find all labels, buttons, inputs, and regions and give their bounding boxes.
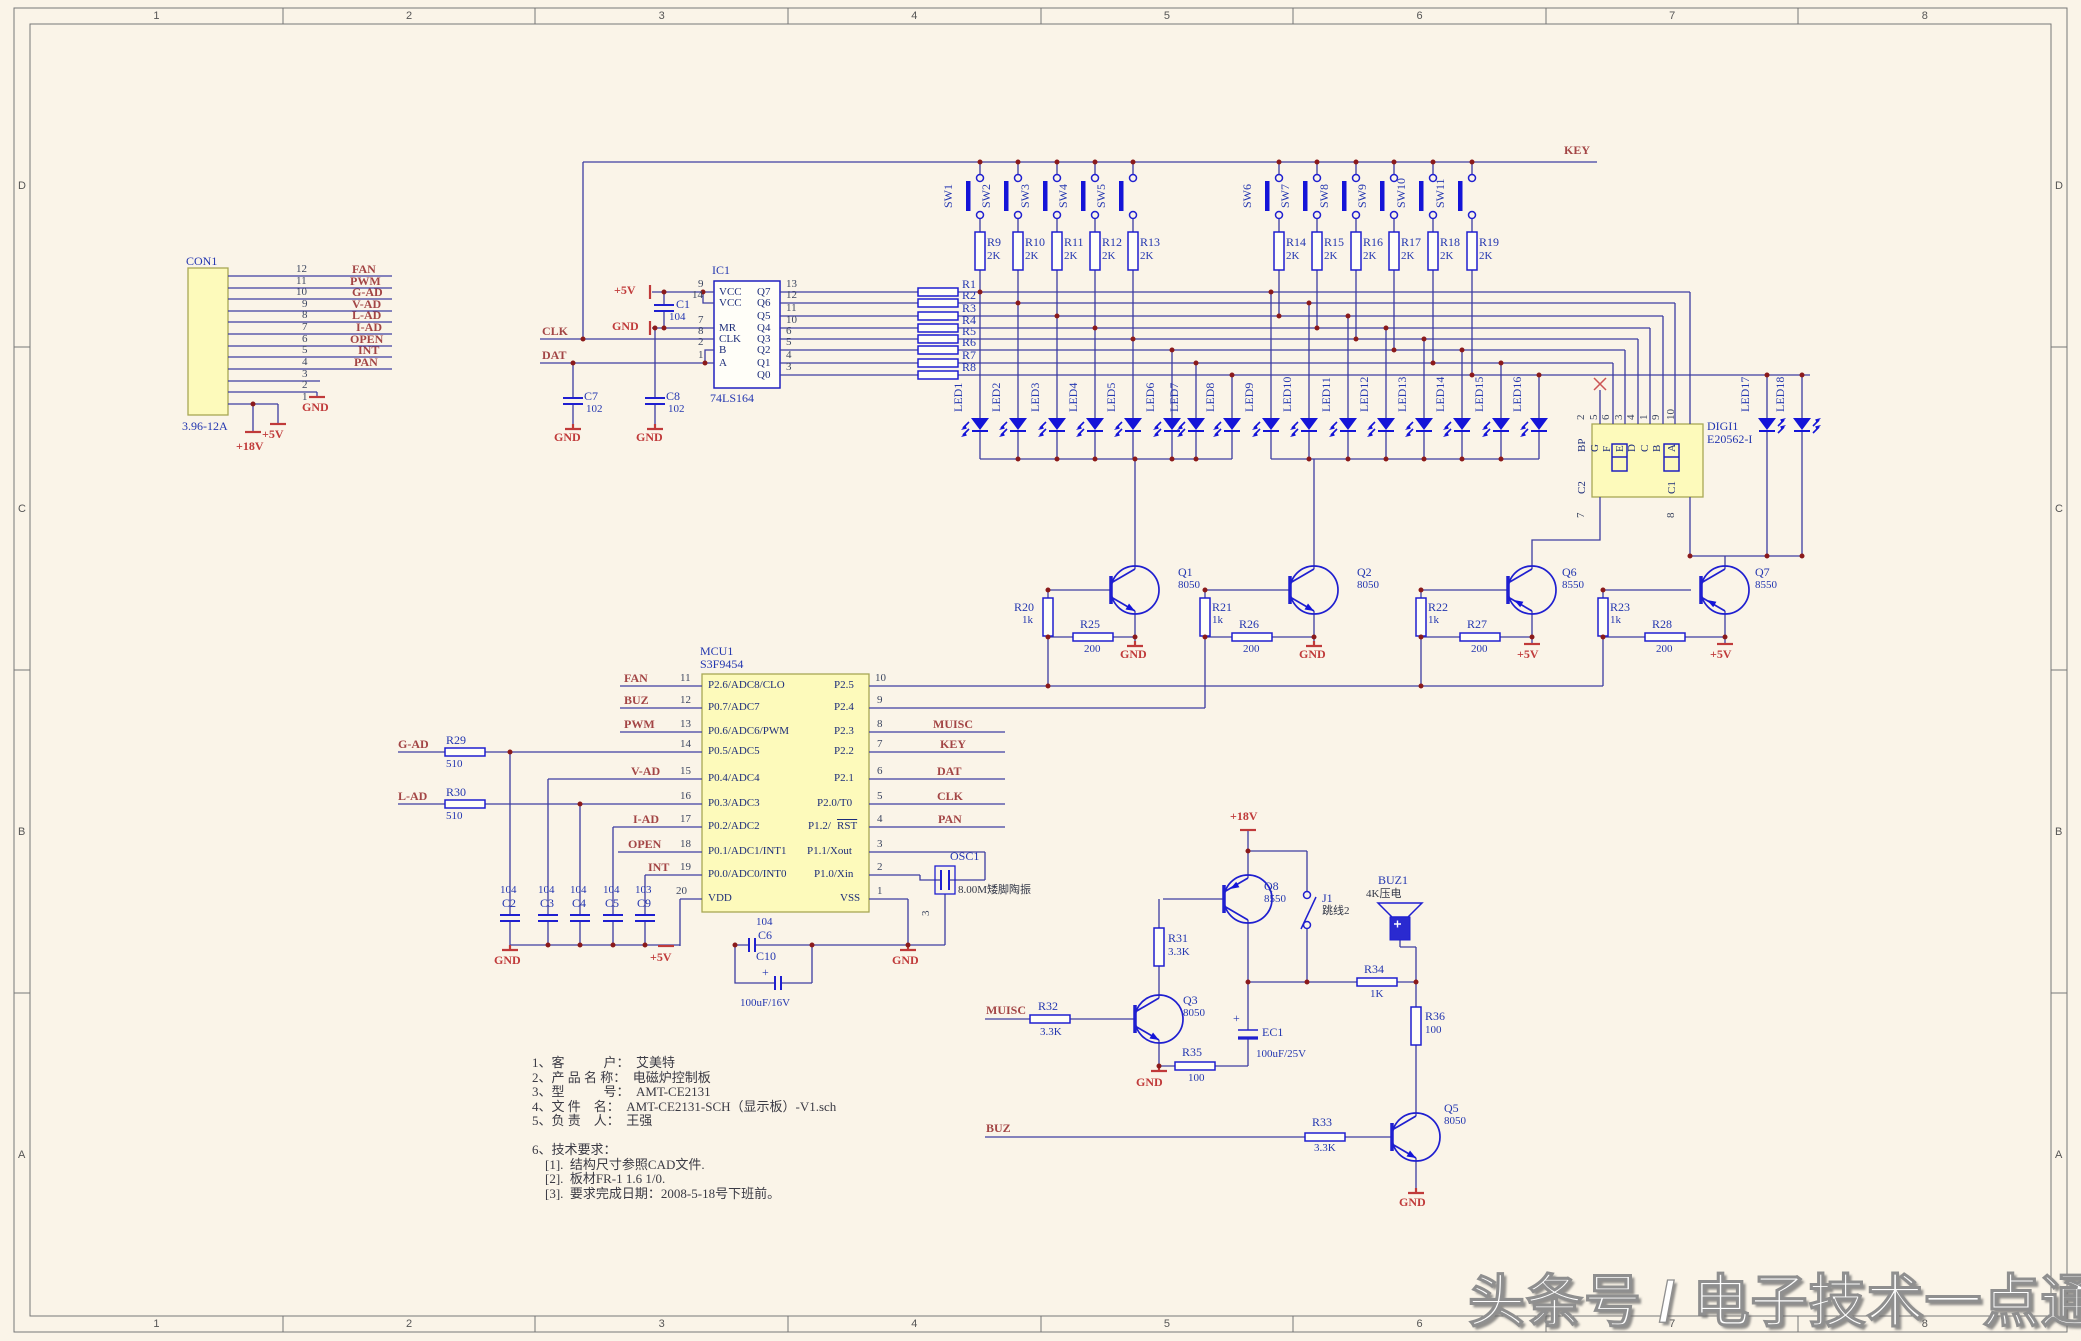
led-14 [1443, 418, 1471, 437]
pwr-gnd-q3: GND [1136, 1076, 1163, 1088]
digi1-l-d: D [1626, 444, 1638, 452]
buz1-val: 4K压电 [1366, 888, 1401, 900]
digi1-body [1592, 424, 1703, 497]
led7-ref: LED7 [1168, 383, 1180, 412]
mcu-l-5: P0.4/ADC4 [708, 772, 760, 784]
r34-ref: R34 [1364, 963, 1384, 975]
ec1-ref: EC1 [1262, 1026, 1283, 1038]
r12-ref: R12 [1102, 236, 1122, 248]
c5-val: 104 [603, 884, 620, 896]
net-iad2: I-AD [633, 813, 659, 825]
transistor-q6 [1508, 566, 1556, 614]
mcu-p8: 8 [877, 718, 883, 730]
border-col-bottom-6: 6 [1416, 1318, 1422, 1330]
border-row-right-C: C [2055, 503, 2063, 515]
led16-ref: LED16 [1511, 377, 1523, 412]
ic1-r-q1: Q1 [757, 357, 770, 369]
gnd-q2 [1306, 641, 1322, 646]
mcu-p6: 6 [877, 765, 883, 777]
net-dat2: DAT [937, 765, 961, 777]
net-clk2: CLK [937, 790, 963, 802]
resistor-r14 [1274, 232, 1284, 270]
r16-val: 2K [1363, 250, 1376, 262]
title-block-line-7: 6、技术要求： [532, 1143, 617, 1157]
title-block-line-3: 3、型 号： AMT-CE2131 [532, 1085, 711, 1099]
led6-ref: LED6 [1144, 383, 1156, 412]
con1-pin-4: 4 [302, 356, 308, 368]
r29-ref: R29 [446, 734, 466, 746]
ec1-plus: + [1233, 1012, 1240, 1024]
mcu-p7: 7 [877, 738, 883, 750]
r23-ref: R23 [1610, 601, 1630, 613]
digi1-part: E20562-I [1707, 433, 1752, 445]
r32-ref: R32 [1038, 1000, 1058, 1012]
ic1-l-a: A [719, 357, 727, 369]
led-9 [1252, 418, 1280, 437]
led-12 [1367, 418, 1395, 437]
pwr-5v-con1: +5V [262, 428, 284, 440]
mcu-l-3: P0.6/ADC6/PWM [708, 725, 789, 737]
border-col-top-8: 8 [1922, 10, 1928, 22]
resistor-r4 [918, 324, 958, 332]
led-1 [961, 418, 989, 437]
switch-sw5[interactable] [1119, 175, 1137, 219]
resistor-r28 [1645, 633, 1685, 641]
mcu-p13: 13 [680, 718, 691, 730]
buzzer-buz1 [1378, 903, 1422, 940]
border-col-bottom-5: 5 [1164, 1318, 1170, 1330]
pwr-18v: +18V [1230, 810, 1258, 822]
schematic-canvas [0, 0, 2081, 1341]
gnd-c7 [565, 424, 581, 429]
net-buz3: BUZ [986, 1122, 1011, 1134]
r26-val: 200 [1243, 643, 1260, 655]
mcu-r-6: P2.0/T0 [817, 797, 852, 809]
digi1-pin-9: 9 [1650, 415, 1662, 421]
ic1-r-q2: Q2 [757, 344, 770, 356]
r2-ref: R2 [962, 289, 976, 301]
r27-ref: R27 [1467, 618, 1487, 630]
net-fan2: FAN [624, 672, 648, 684]
ic1-p5: 5 [786, 336, 792, 348]
border-row-right-A: A [2055, 1149, 2062, 1161]
led15-ref: LED15 [1473, 377, 1485, 412]
r18-ref: R18 [1440, 236, 1460, 248]
resistor-r33 [1305, 1133, 1345, 1141]
digi1-pin-7: 7 [1575, 513, 1587, 519]
r22-val: 1k [1428, 614, 1439, 626]
led17-ref: LED17 [1739, 377, 1751, 412]
con1-ref: CON1 [186, 255, 217, 267]
net-clk: CLK [542, 325, 568, 337]
pwr-18v-con1: +18V [236, 440, 264, 452]
r23-val: 1k [1610, 614, 1621, 626]
r21-ref: R21 [1212, 601, 1232, 613]
con1-pin-12: 12 [296, 263, 307, 275]
r32-val: 3.3K [1040, 1026, 1062, 1038]
buz1-ref: BUZ1 [1378, 874, 1408, 886]
transistor-q7 [1701, 566, 1749, 614]
border-row-left-B: B [18, 826, 25, 838]
ic1-r-q0: Q0 [757, 369, 770, 381]
resistor-r21 [1200, 598, 1210, 636]
digi1-l-c1: C1 [1666, 481, 1678, 494]
ic1-l-b: B [719, 344, 726, 356]
border-row-right-D: D [2055, 180, 2063, 192]
border-col-bottom-1: 1 [153, 1318, 159, 1330]
led-3 [1038, 418, 1066, 437]
r17-ref: R17 [1401, 236, 1421, 248]
resistor-r16 [1351, 232, 1361, 270]
con1-pin-7: 7 [302, 321, 308, 333]
capacitor-c9 [635, 915, 655, 921]
border-row-left-C: C [18, 503, 26, 515]
resistor-r23 [1598, 598, 1608, 636]
c5-ref: C5 [605, 897, 619, 909]
mcu-p1: 1 [877, 885, 883, 897]
pwr-gnd-c8: GND [636, 431, 663, 443]
schematic-page: CON1121110987654321FANPWMG-ADV-ADL-ADI-A… [0, 0, 2081, 1341]
sw11-ref: SW11 [1434, 178, 1446, 208]
led-10 [1290, 418, 1318, 437]
watermark: 头条号 / 电子技术一点通 [1468, 1256, 2081, 1338]
resistor-r34 [1357, 978, 1397, 986]
r19-ref: R19 [1479, 236, 1499, 248]
led3-ref: LED3 [1029, 383, 1041, 412]
net-int2: INT [648, 861, 669, 873]
power-symbols [245, 285, 1733, 1193]
r11-ref: R11 [1064, 236, 1084, 248]
mcu-p2: 2 [877, 861, 883, 873]
led13-ref: LED13 [1396, 377, 1408, 412]
ic1-l-vcc2: VCC [719, 297, 742, 309]
ic1-p1: 1 [698, 349, 704, 361]
digi1-l-a: A [1666, 444, 1678, 452]
digi1-l-bp: BP [1576, 439, 1588, 452]
resistor-r9 [975, 232, 985, 270]
r14-val: 2K [1286, 250, 1299, 262]
r35-val: 100 [1188, 1072, 1205, 1084]
digi1-pin-1: 1 [1638, 415, 1650, 421]
resistor-r32 [1030, 1015, 1070, 1023]
r9-ref: R9 [987, 236, 1001, 248]
q5-part: 8050 [1444, 1115, 1466, 1127]
net-open2: OPEN [628, 838, 661, 850]
capacitor-c3 [538, 915, 558, 921]
r31-val: 3.3K [1168, 946, 1190, 958]
led-18 [1793, 418, 1821, 433]
sw3-ref: SW3 [1019, 184, 1031, 208]
led8-ref: LED8 [1204, 383, 1216, 412]
con1-body [188, 268, 228, 415]
title-block-line-5: 5、负 责 人： 王强 [532, 1114, 652, 1128]
pwr-gnd-q2: GND [1299, 648, 1326, 660]
resistor-r13 [1128, 232, 1138, 270]
pwr-5v-caps: +5V [650, 951, 672, 963]
r17-val: 2K [1401, 250, 1414, 262]
mcu-p16: 16 [680, 790, 691, 802]
led-16 [1520, 418, 1548, 437]
con1-pin-2: 2 [302, 379, 308, 391]
c1-val: 104 [669, 311, 686, 323]
border-col-bottom-3: 3 [659, 1318, 665, 1330]
digi1-ref: DIGI1 [1707, 420, 1738, 432]
title-block-line-10: [3]. 要求完成日期：2008-5-18号下班前。 [532, 1187, 780, 1201]
digi1-pin-6: 6 [1600, 415, 1612, 421]
c7-ref: C7 [584, 390, 598, 402]
led11-ref: LED11 [1320, 377, 1332, 412]
r15-val: 2K [1324, 250, 1337, 262]
q1-part: 8050 [1178, 579, 1200, 591]
resistor-r3 [918, 312, 958, 320]
resistor-r25 [1073, 633, 1113, 641]
ic1-r-q5: Q5 [757, 310, 770, 322]
r20-ref: R20 [1014, 601, 1034, 613]
ic1-r-q6: Q6 [757, 297, 770, 309]
border-col-top-2: 2 [406, 10, 412, 22]
sw7-ref: SW7 [1279, 184, 1291, 208]
switch-sw11[interactable] [1458, 175, 1476, 219]
pwr-5v-q7: +5V [1710, 648, 1732, 660]
q2-ref: Q2 [1357, 566, 1372, 578]
mcu-p19: 19 [680, 861, 691, 873]
transistor-q5 [1392, 1113, 1440, 1161]
con1-pin-8: 8 [302, 309, 308, 321]
mcu-p12: 12 [680, 694, 691, 706]
digi1-l-g: G [1589, 444, 1601, 452]
q7-part: 8550 [1755, 579, 1777, 591]
title-block-line-4: 4、文 件 名： AMT-CE2131-SCH（显示板）-V1.sch [532, 1100, 836, 1114]
c7-val: 102 [586, 403, 603, 415]
r13-val: 2K [1140, 250, 1153, 262]
resistor-r18 [1428, 232, 1438, 270]
mcu-r-9: P1.0/Xin [814, 868, 853, 880]
digi1-pin-8: 8 [1665, 513, 1677, 519]
mcu-p11: 11 [680, 672, 691, 684]
c10-ref: C10 [756, 950, 776, 962]
ic1-p11: 11 [786, 302, 797, 314]
sw2-ref: SW2 [980, 184, 992, 208]
resistor-r20 [1043, 598, 1053, 636]
q2-part: 8050 [1357, 579, 1379, 591]
pwr-gnd-c7: GND [554, 431, 581, 443]
digi1-pin-5: 5 [1588, 415, 1600, 421]
r30-ref: R30 [446, 786, 466, 798]
led12-ref: LED12 [1358, 377, 1370, 412]
c4-val: 104 [570, 884, 587, 896]
mcu-l-1: P2.6/ADC8/CLO [708, 679, 785, 691]
border-col-bottom-2: 2 [406, 1318, 412, 1330]
c2-ref: C2 [502, 897, 516, 909]
resistor-r15 [1312, 232, 1322, 270]
wires [228, 162, 1810, 1188]
resistor-r11 [1052, 232, 1062, 270]
net-muisc: MUISC [933, 718, 973, 730]
r35-ref: R35 [1182, 1046, 1202, 1058]
led-6 [1153, 418, 1181, 437]
digi1-pin-3: 3 [1613, 415, 1625, 421]
r26-ref: R26 [1239, 618, 1259, 630]
transistor-q1 [1111, 566, 1159, 614]
net-lad2: L-AD [398, 790, 427, 802]
c6-ref: C6 [758, 929, 772, 941]
capacitor-c10 [775, 976, 781, 990]
led-2 [999, 418, 1027, 437]
j1-ref: J1 [1322, 892, 1333, 904]
border-row-right-B: B [2055, 826, 2062, 838]
title-block-line-1: 1、客 户： 艾美特 [532, 1056, 675, 1070]
net-muisc2: MUISC [986, 1004, 1026, 1016]
border-col-top-5: 5 [1164, 10, 1170, 22]
mcu-p5: 5 [877, 790, 883, 802]
r28-val: 200 [1656, 643, 1673, 655]
mcu-r-1: P2.5 [834, 679, 854, 691]
r31-ref: R31 [1168, 932, 1188, 944]
mcu-l-9: P0.0/ADC0/INT0 [708, 868, 787, 880]
resistor-r1 [918, 288, 958, 296]
con1-pin-5: 5 [302, 344, 308, 356]
c3-ref: C3 [540, 897, 554, 909]
gnd-caps [502, 945, 518, 950]
led9-ref: LED9 [1243, 383, 1255, 412]
gnd-q5 [1408, 1188, 1424, 1193]
ic1-p12: 12 [786, 289, 797, 301]
r18-val: 2K [1440, 250, 1453, 262]
capacitor-c4 [570, 915, 590, 921]
r8-ref: R8 [962, 361, 976, 373]
resistor-r2 [918, 299, 958, 307]
resistor-r5 [918, 335, 958, 343]
resistor-r12 [1090, 232, 1100, 270]
led-13 [1405, 418, 1433, 437]
title-block-line-2: 2、产 品 名 称： 电磁炉控制板 [532, 1071, 711, 1085]
net-vad2: V-AD [631, 765, 660, 777]
mcu-r-7a: P1.2/ [808, 820, 831, 832]
mcu-l-8: P0.1/ADC1/INT1 [708, 845, 787, 857]
c2-val: 104 [500, 884, 517, 896]
resistor-r10 [1013, 232, 1023, 270]
resistor-r8 [918, 371, 958, 379]
c9-ref: C9 [637, 897, 651, 909]
title-block-line-9: [2]. 板材FR-1 1.6 1/0. [532, 1172, 665, 1186]
c4-ref: C4 [572, 897, 586, 909]
net-pwm2: PWM [624, 718, 655, 730]
digi1-l-b: B [1651, 445, 1663, 452]
mcu-l-7: P0.2/ADC2 [708, 820, 760, 832]
c8-val: 102 [668, 403, 685, 415]
mcu-p14: 14 [680, 738, 691, 750]
resistor-r19 [1467, 232, 1477, 270]
c9-val: 103 [635, 884, 652, 896]
resistor-r35 [1175, 1062, 1215, 1070]
r34-val: 1K [1370, 988, 1383, 1000]
q5-ref: Q5 [1444, 1102, 1459, 1114]
c10-val: 100uF/16V [740, 997, 790, 1009]
border-row-left-D: D [18, 180, 26, 192]
mcu-p4: 4 [877, 813, 883, 825]
r12-val: 2K [1102, 250, 1115, 262]
net-key: KEY [1564, 144, 1590, 156]
net-pan: PAN [354, 356, 378, 368]
mcu-r-5: P2.1 [834, 772, 854, 784]
mcu-r-7b: RST [837, 820, 857, 832]
net-gad2: G-AD [398, 738, 429, 750]
pwr-gnd-caps: GND [494, 954, 521, 966]
r16-ref: R16 [1363, 236, 1383, 248]
digi1-l-e: E [1614, 445, 1626, 452]
mcu-r-2: P2.4 [834, 701, 854, 713]
jumper-j1[interactable] [1301, 892, 1316, 930]
resistor-r17 [1389, 232, 1399, 270]
pwr-gnd-con1: GND [302, 401, 329, 413]
mcu-r-8: P1.1/Xout [807, 845, 852, 857]
r25-ref: R25 [1080, 618, 1100, 630]
border-row-left-A: A [18, 1149, 25, 1161]
resistor-r27 [1460, 633, 1500, 641]
pwr-gnd-ic1: GND [612, 320, 639, 332]
r19-val: 2K [1479, 250, 1492, 262]
led-15 [1482, 418, 1510, 437]
transistor-q3 [1135, 995, 1183, 1043]
r30-val: 510 [446, 810, 463, 822]
q3-part: 8050 [1183, 1007, 1205, 1019]
capacitor-c8 [645, 398, 665, 404]
c8-ref: C8 [666, 390, 680, 402]
border-col-top-6: 6 [1416, 10, 1422, 22]
gnd-c8 [647, 424, 663, 429]
sw9-ref: SW9 [1356, 184, 1368, 208]
r15-ref: R15 [1324, 236, 1344, 248]
ic1-p14: 14 [692, 289, 703, 301]
led5-ref: LED5 [1105, 383, 1117, 412]
led4-ref: LED4 [1067, 383, 1079, 412]
con1-pin-10: 10 [296, 286, 307, 298]
r11-val: 2K [1064, 250, 1077, 262]
led1-ref: LED1 [952, 383, 964, 412]
q8-ref: Q8 [1264, 880, 1279, 892]
capacitor-c5 [603, 915, 623, 921]
c6-val: 104 [756, 916, 773, 928]
q1-ref: Q1 [1178, 566, 1193, 578]
net-buz2: BUZ [624, 694, 649, 706]
c3-val: 104 [538, 884, 555, 896]
sw8-ref: SW8 [1318, 184, 1330, 208]
r21-val: 1k [1212, 614, 1223, 626]
r10-ref: R10 [1025, 236, 1045, 248]
sw1-ref: SW1 [942, 184, 954, 208]
digi1-pin-4: 4 [1625, 415, 1637, 421]
mcu-l-2: P0.7/ADC7 [708, 701, 760, 713]
q3-ref: Q3 [1183, 994, 1198, 1006]
ic1-ref: IC1 [712, 264, 730, 276]
r36-val: 100 [1425, 1024, 1442, 1036]
led-4 [1076, 418, 1104, 437]
ic1-p4: 4 [786, 349, 792, 361]
mcu-p15: 15 [680, 765, 691, 777]
r29-val: 510 [446, 758, 463, 770]
con1-part: 3.96-12A [182, 420, 228, 432]
led-17 [1758, 418, 1786, 433]
led-7 [1177, 418, 1205, 437]
border-col-top-3: 3 [659, 10, 665, 22]
mcu-l-6: P0.3/ADC3 [708, 797, 760, 809]
r27-val: 200 [1471, 643, 1488, 655]
q8-part: 8550 [1264, 893, 1286, 905]
title-block-line-8: [1]. 结构尺寸参照CAD文件. [532, 1158, 705, 1172]
resistor-r31 [1154, 928, 1164, 966]
r10-val: 2K [1025, 250, 1038, 262]
transistor-q2 [1290, 566, 1338, 614]
